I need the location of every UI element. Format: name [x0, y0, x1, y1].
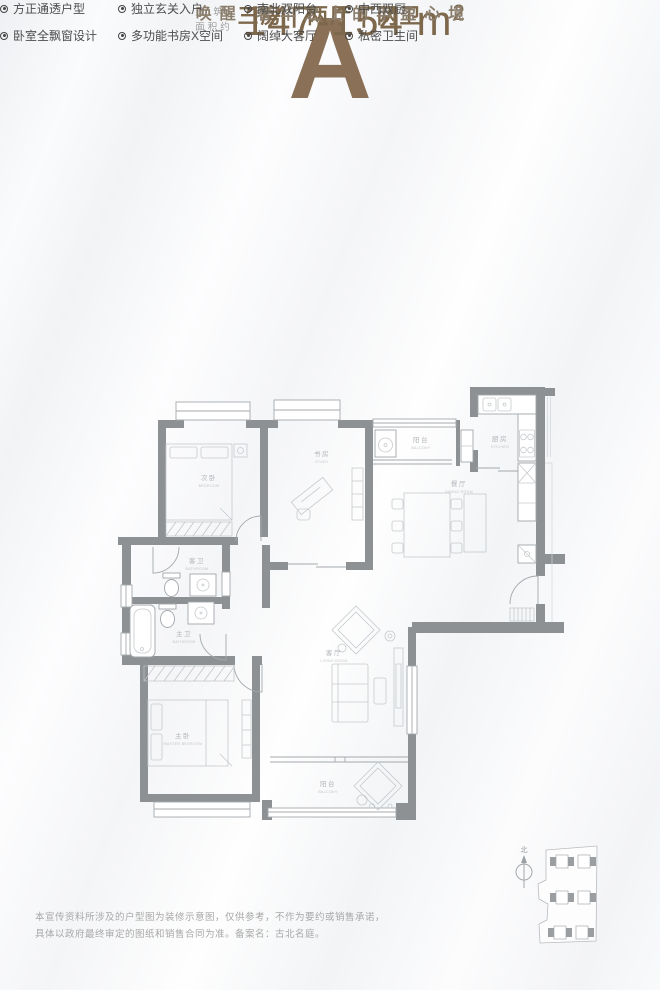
disclaimer-line2: 具体以政府最终审定的图纸和销售合同为准。备案名：古北名庭。 — [35, 927, 385, 944]
bullet-icon — [0, 5, 8, 13]
floorplan-windows — [121, 397, 552, 817]
feature-item: 独立玄关入户 — [118, 0, 244, 17]
kitchen-fixtures — [478, 395, 536, 621]
dining-furniture — [392, 493, 486, 557]
feature-item: 多功能书房X空间 — [118, 27, 244, 44]
bullet-icon — [0, 32, 8, 40]
room-label-master-bath-en: BATHROOM — [173, 640, 196, 644]
feature-label: 方正通透户型 — [13, 0, 85, 17]
feature-item: 中西双厨 — [345, 0, 437, 17]
feature-label: 阔绰大客厅 — [257, 27, 317, 44]
room-label-guest-bath-cn: 客卫 — [189, 556, 205, 565]
room-label-master-bath-cn: 主卫 — [176, 629, 192, 638]
bedroom2-furniture — [166, 444, 247, 536]
feature-item: 卧室全飘窗设计 — [0, 27, 118, 44]
room-label-kitchen-en: KITCHEN — [491, 445, 509, 449]
floorplan-walls — [118, 387, 565, 820]
master-bath-fixtures — [130, 602, 214, 657]
room-label-dining-en: DINING ROOM — [445, 490, 473, 494]
room-label-bedroom2-cn: 次卧 — [201, 473, 217, 482]
room-label-living-en: LIVING ROOM — [320, 659, 347, 663]
room-labels: 次卧 BEDROOM 书房 STUDY 阳台 BALCONY 厨房 KITCHE… — [164, 434, 509, 794]
flyer-page: A 建 筑 面积约 147-154 m2 三房 | 两厅 | 两卫 唤醒 奢华之… — [0, 0, 660, 990]
room-label-north-balcony-en: BALCONY — [411, 446, 431, 450]
bullet-icon — [244, 32, 252, 40]
feature-list: 方正通透户型 独立玄关入户 南北双阳台 中西双厨 卧室全飘窗设计 多功能书房X空… — [0, 0, 437, 44]
room-label-south-balcony-cn: 阳台 — [320, 779, 336, 788]
room-label-dining-cn: 餐厅 — [451, 479, 467, 488]
room-label-master-bedroom-en: MASTER BEDROOM — [164, 742, 203, 746]
bullet-icon — [244, 5, 252, 13]
feature-item: 方正通透户型 — [0, 0, 118, 17]
feature-label: 卧室全飘窗设计 — [13, 27, 97, 44]
disclaimer-line1: 本宣传资料所涉及的户型图为装修示意图，仅供参考，不作为要约或销售承诺， — [35, 910, 385, 927]
room-label-south-balcony-en: BALCONY — [318, 790, 338, 794]
study-furniture — [291, 468, 363, 520]
room-label-kitchen-cn: 厨房 — [492, 434, 508, 443]
feature-label: 南北双阳台 — [257, 0, 317, 17]
room-label-north-balcony-cn: 阳台 — [413, 435, 429, 444]
room-label-bedroom2-en: BEDROOM — [199, 484, 220, 488]
feature-label: 中西双厨 — [358, 0, 406, 17]
south-balcony-furniture — [354, 762, 402, 810]
room-label-guest-bath-en: BATHROOM — [186, 567, 209, 571]
bullet-icon — [345, 5, 353, 13]
room-label-study-cn: 书房 — [314, 449, 330, 458]
living-room-furniture — [332, 606, 403, 726]
master-bedroom-furniture — [144, 666, 251, 766]
guest-bath-fixtures — [163, 572, 230, 597]
site-plan: 北 — [480, 828, 650, 963]
floorplan-drawing: 次卧 BEDROOM 书房 STUDY 阳台 BALCONY 厨房 KITCHE… — [115, 372, 575, 830]
bullet-icon — [118, 5, 126, 13]
feature-item: 私密卫生间 — [345, 27, 437, 44]
disclaimer: 本宣传资料所涉及的户型图为装修示意图，仅供参考，不作为要约或销售承诺， 具体以政… — [35, 910, 385, 943]
bullet-icon — [345, 32, 353, 40]
feature-label: 独立玄关入户 — [131, 0, 203, 17]
bullet-icon — [118, 32, 126, 40]
feature-label: 私密卫生间 — [358, 27, 418, 44]
room-label-study-en: STUDY — [315, 460, 329, 464]
feature-label: 多功能书房X空间 — [131, 27, 223, 44]
room-label-master-bedroom-cn: 主卧 — [175, 731, 191, 740]
feature-item: 南北双阳台 — [244, 0, 345, 17]
feature-item: 阔绰大客厅 — [244, 27, 345, 44]
room-label-living-cn: 客厅 — [326, 648, 342, 657]
compass-icon: 北 — [516, 846, 532, 888]
compass-north-label: 北 — [521, 846, 528, 854]
